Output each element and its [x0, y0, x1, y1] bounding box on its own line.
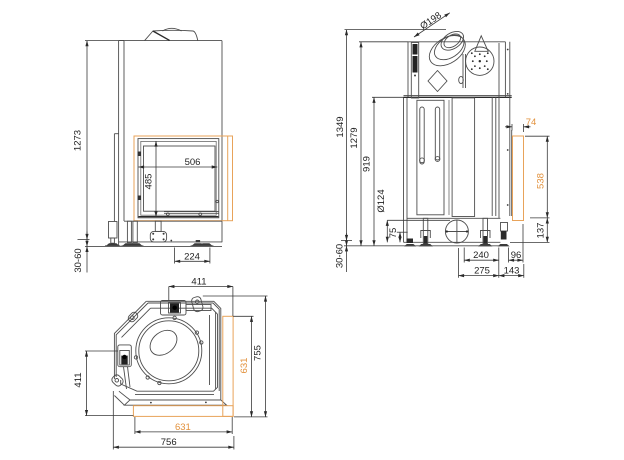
svg-text:137: 137	[535, 223, 546, 239]
svg-text:506: 506	[185, 157, 201, 168]
svg-text:919: 919	[362, 156, 373, 172]
svg-text:1279: 1279	[349, 127, 360, 148]
svg-text:631: 631	[175, 422, 191, 433]
svg-text:485: 485	[144, 174, 155, 190]
svg-text:Ø124: Ø124	[376, 189, 387, 212]
svg-text:631: 631	[239, 358, 250, 374]
svg-text:143: 143	[504, 266, 520, 277]
svg-text:411: 411	[73, 372, 84, 387]
svg-text:30-60: 30-60	[73, 248, 84, 272]
svg-text:240: 240	[473, 250, 489, 261]
svg-text:275: 275	[474, 266, 490, 277]
svg-text:96: 96	[511, 250, 522, 261]
svg-text:538: 538	[535, 173, 546, 189]
svg-text:1273: 1273	[73, 130, 84, 151]
svg-text:755: 755	[252, 345, 263, 361]
svg-text:1349: 1349	[335, 116, 346, 137]
svg-text:75: 75	[388, 228, 399, 239]
svg-text:411: 411	[191, 277, 206, 288]
svg-text:756: 756	[161, 437, 177, 448]
svg-text:30-60: 30-60	[335, 244, 346, 268]
svg-text:224: 224	[184, 251, 200, 262]
svg-text:74: 74	[526, 117, 537, 128]
